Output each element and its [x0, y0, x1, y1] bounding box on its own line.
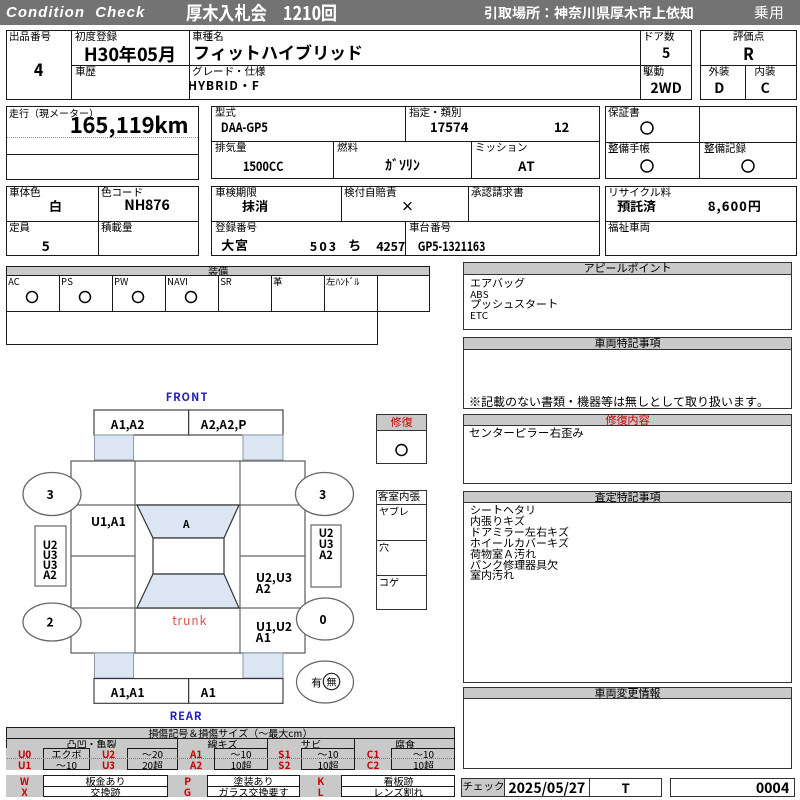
svg-text:U1,A1: U1,A1 — [91, 513, 126, 530]
svg-text:A2,A2,P: A2,A2,P — [201, 416, 246, 433]
svg-text:A1,A2: A1,A2 — [111, 416, 144, 433]
svg-text:trunk: trunk — [171, 612, 207, 629]
svg-text:A: A — [182, 517, 190, 532]
svg-text:2: 2 — [46, 614, 53, 631]
svg-text:有: 有 — [311, 675, 322, 691]
svg-text:3: 3 — [319, 486, 326, 503]
svg-text:無: 無 — [327, 674, 337, 689]
svg-text:A1: A1 — [256, 629, 271, 646]
svg-text:0: 0 — [319, 611, 326, 628]
svg-text:3: 3 — [46, 486, 53, 503]
svg-text:A2: A2 — [43, 567, 57, 583]
svg-text:A1: A1 — [201, 684, 216, 701]
svg-text:A2: A2 — [256, 580, 271, 597]
svg-text:FRONT: FRONT — [166, 389, 209, 405]
svg-text:REAR: REAR — [170, 708, 203, 724]
svg-text:A2: A2 — [319, 547, 333, 563]
svg-text:A1,A1: A1,A1 — [111, 684, 144, 701]
